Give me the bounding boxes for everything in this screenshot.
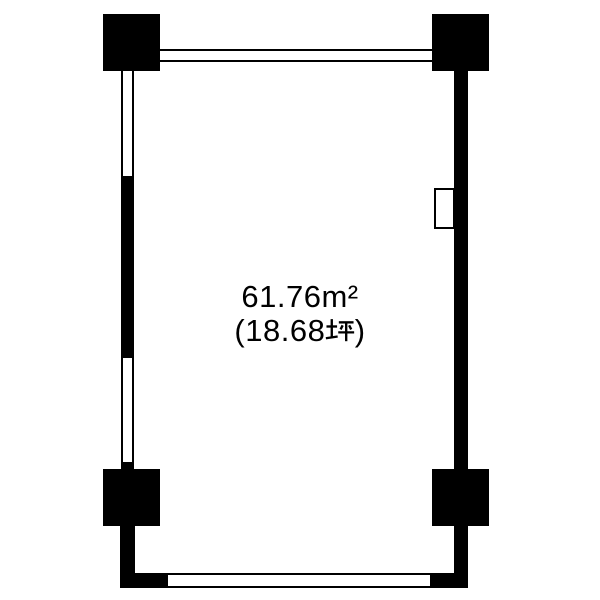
wall-left-cap [121,462,134,469]
floorplan-canvas: 61.76m² (18.68 ) [0,0,600,600]
window-frame-line [121,71,123,176]
tsubo-kanji-glyph [325,315,354,344]
column-bottom-right [432,469,489,526]
column-top-left [103,14,160,71]
window-left-upper [121,71,134,176]
window-glass [168,573,430,588]
tsubo-stroke [326,337,338,339]
column-bottom-left [103,469,160,526]
window-left-lower [121,358,134,462]
window-frame-line [168,573,430,575]
window-frame-line [168,586,430,588]
window-frame-line [132,358,134,462]
area-label: 61.76m² (18.68 ) [0,280,600,348]
window-bottom [168,573,430,588]
tsubo-stroke [349,326,351,330]
window-frame-line [121,358,123,462]
column-top-right [432,14,489,71]
wall-bottom-left-segment [120,573,168,588]
wall-bottom-right-segment [430,573,468,588]
door-marker [435,189,454,228]
window-frame-line [160,49,432,51]
tsubo-stroke [341,326,343,330]
area-tsubo-close: ) [355,313,366,348]
area-tsubo-open: (18.68 [234,313,325,348]
area-square-meters: 61.76m² [0,280,600,314]
window-frame-line [160,60,432,62]
window-top [160,49,432,62]
area-tsubo: (18.68 ) [0,314,600,348]
window-frame-line [132,71,134,176]
